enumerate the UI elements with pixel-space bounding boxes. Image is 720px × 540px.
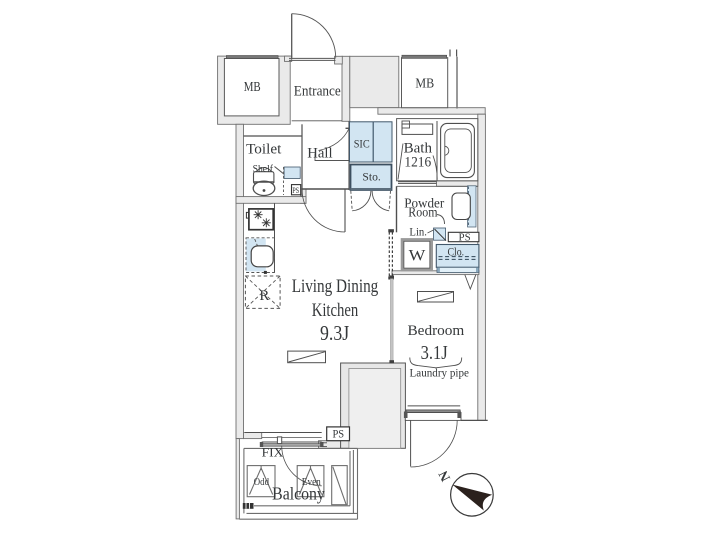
svg-text:R: R xyxy=(259,288,269,304)
svg-text:W: W xyxy=(409,247,426,264)
svg-text:PS: PS xyxy=(292,185,299,195)
svg-text:MB: MB xyxy=(244,80,261,95)
svg-text:Entrance: Entrance xyxy=(294,83,341,99)
svg-text:Odd: Odd xyxy=(254,477,269,488)
svg-text:Clo.: Clo. xyxy=(447,247,464,259)
svg-text:Toilet: Toilet xyxy=(246,142,282,158)
svg-text:1216: 1216 xyxy=(404,155,431,171)
svg-text:FIX: FIX xyxy=(262,446,284,460)
svg-text:SIC: SIC xyxy=(354,137,370,151)
svg-text:Room: Room xyxy=(408,205,438,220)
svg-text:Sto.: Sto. xyxy=(362,170,380,184)
svg-text:N: N xyxy=(435,468,453,484)
svg-text:Kitchen: Kitchen xyxy=(312,301,359,321)
svg-text:9.3J: 9.3J xyxy=(320,321,349,345)
svg-text:Lin.: Lin. xyxy=(409,227,427,239)
svg-text:Bedroom: Bedroom xyxy=(408,323,465,339)
svg-text:3.1J: 3.1J xyxy=(421,342,448,364)
svg-text:Laundry pipe: Laundry pipe xyxy=(410,365,469,379)
svg-text:PS: PS xyxy=(332,426,344,440)
svg-text:Balcony: Balcony xyxy=(272,483,325,503)
svg-text:MB: MB xyxy=(415,76,434,91)
svg-text:Hall: Hall xyxy=(307,145,332,161)
svg-text:PS: PS xyxy=(459,232,471,243)
svg-text:Shelf: Shelf xyxy=(253,164,274,175)
svg-text:Living Dining: Living Dining xyxy=(292,277,379,297)
